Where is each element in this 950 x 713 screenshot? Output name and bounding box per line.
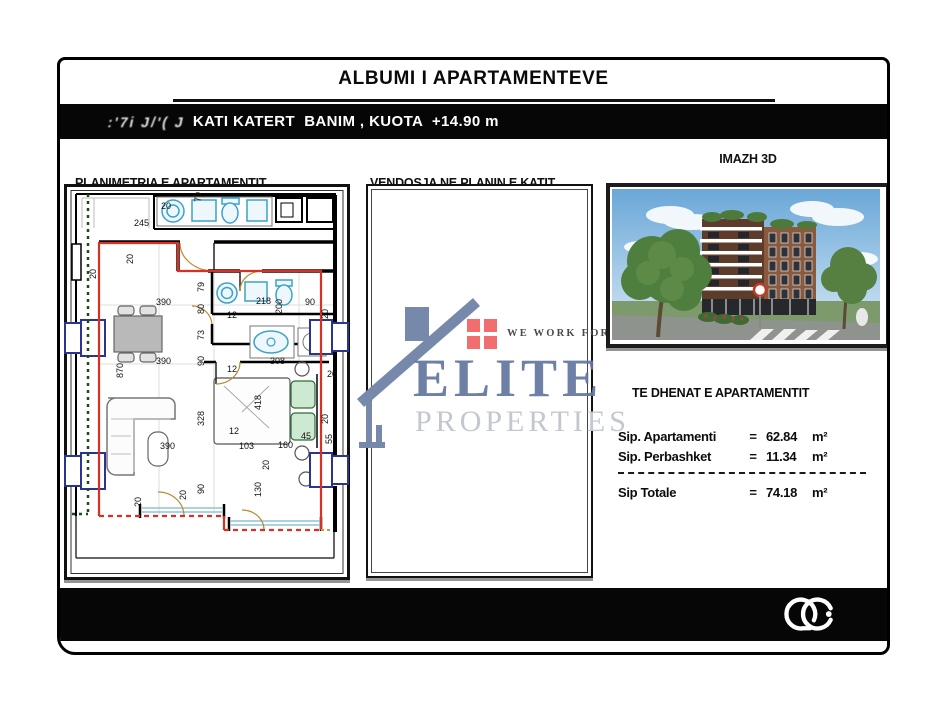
dimension-label: 20 [88,269,98,279]
dimension-label: 79 [193,192,203,202]
floor-label: KATI KATERT BANIM , KUOTA +14.90 m [193,113,499,130]
detail-label: Sip. Apartamenti [618,429,740,444]
dimension-label: 390 [156,297,171,307]
dimension-label: 90 [305,297,315,307]
page-title: ALBUMI I APARTAMENTEVE [60,68,887,90]
dimension-label: 80 [196,304,206,314]
album-sheet: ALBUMI I APARTAMENTEVE :'7i J/'( J KATI … [57,57,890,655]
dimension-label: 390 [156,356,171,366]
equals-sign: = [740,485,766,500]
title-underline [173,99,775,102]
dimension-label: 20 [320,309,330,319]
dimension-label: 20 [320,414,330,424]
equals-sign: = [740,429,766,444]
site-plan-panel [366,184,593,578]
dimension-label: 79 [196,282,206,292]
apartment-number-scribble: :'7i J/'( J [106,114,186,130]
detail-value: 62.84 [766,429,812,444]
dimension-label: 20 [178,490,188,500]
render-photo-panel [606,183,890,348]
ao-logo-icon [775,590,871,640]
apartment-details: TE DHENAT E APARTAMENTIT Sip. Apartament… [618,386,880,502]
dimension-label: 160 [278,440,293,450]
floor-plan-panel: 2024579202039079218200908012739039087012… [64,184,350,580]
detail-label: Sip. Perbashket [618,449,740,464]
detail-row-total: Sip Totale = 74.18 m² [618,482,880,502]
detail-unit: m² [812,449,827,464]
detail-row-common: Sip. Perbashket = 11.34 m² [618,446,880,466]
dimension-label: 20 [261,460,271,470]
dimension-label: 20 [161,201,171,211]
dimension-label: 200 [274,299,284,314]
details-heading: TE DHENAT E APARTAMENTIT [618,386,880,400]
dimension-label: 90 [196,356,206,366]
dimension-label: 418 [253,395,263,410]
dimension-label: 20 [125,254,135,264]
page-header: ALBUMI I APARTAMENTEVE [60,62,887,90]
dimension-label: 12 [227,364,237,374]
equals-sign: = [740,449,766,464]
dimension-label: 390 [160,441,175,451]
dimension-label: 308 [270,356,285,366]
dimension-label: 73 [196,330,206,340]
dimension-label: 328 [196,411,206,426]
dimension-label: 12 [227,310,237,320]
details-separator [618,472,866,474]
detail-label: Sip Totale [618,485,740,500]
floor-bar: :'7i J/'( J KATI KATERT BANIM , KUOTA +1… [60,104,887,139]
detail-value: 11.34 [766,449,812,464]
dimension-label: 870 [115,363,125,378]
building-3d-render [612,189,880,340]
dimension-label: 12 [229,426,239,436]
dimension-label: 130 [253,482,263,497]
detail-unit: m² [812,429,827,444]
detail-row-apartment: Sip. Apartamenti = 62.84 m² [618,426,880,446]
dimension-label: 45 [301,431,311,441]
dimension-label: 103 [239,441,254,451]
dimension-label: 20 [133,497,143,507]
site-plan-canvas [371,189,588,573]
detail-value: 74.18 [766,485,812,500]
render-panel-header: IMAZH 3D [606,152,890,166]
dimension-label: 218 [256,296,271,306]
dimension-label: 20 [327,369,337,379]
detail-unit: m² [812,485,827,500]
dimension-label: 90 [196,484,206,494]
dimension-label: 55 [324,434,334,444]
footer-bar [60,588,887,641]
floor-plan-drawing: 2024579202039079218200908012739039087012… [64,184,350,580]
dimension-label: 245 [134,218,149,228]
